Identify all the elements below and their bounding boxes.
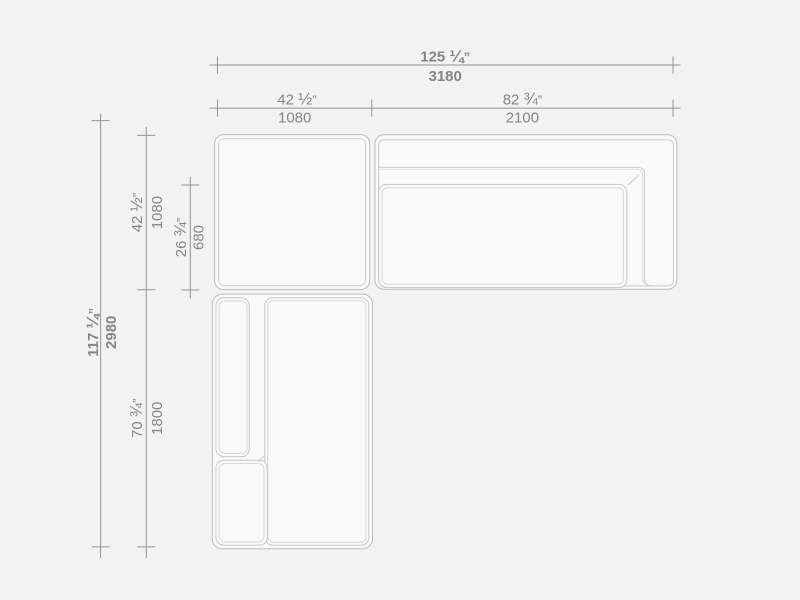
svg-text:3180: 3180: [429, 68, 462, 85]
svg-text:70 ¾”: 70 ¾”: [127, 399, 146, 438]
svg-text:117 ¼”: 117 ¼”: [83, 308, 102, 357]
svg-text:2100: 2100: [506, 109, 539, 126]
svg-text:1800: 1800: [149, 402, 166, 435]
svg-text:2980: 2980: [103, 316, 120, 349]
svg-text:42 ½”: 42 ½”: [277, 90, 316, 109]
svg-text:26 ¾”: 26 ¾”: [171, 218, 190, 257]
svg-text:1080: 1080: [149, 196, 166, 229]
svg-text:125 ¼”: 125 ¼”: [420, 46, 470, 65]
svg-text:1080: 1080: [278, 109, 311, 126]
svg-text:82 ¾”: 82 ¾”: [503, 90, 542, 109]
svg-text:680: 680: [191, 225, 208, 250]
svg-text:42 ½”: 42 ½”: [127, 193, 146, 232]
